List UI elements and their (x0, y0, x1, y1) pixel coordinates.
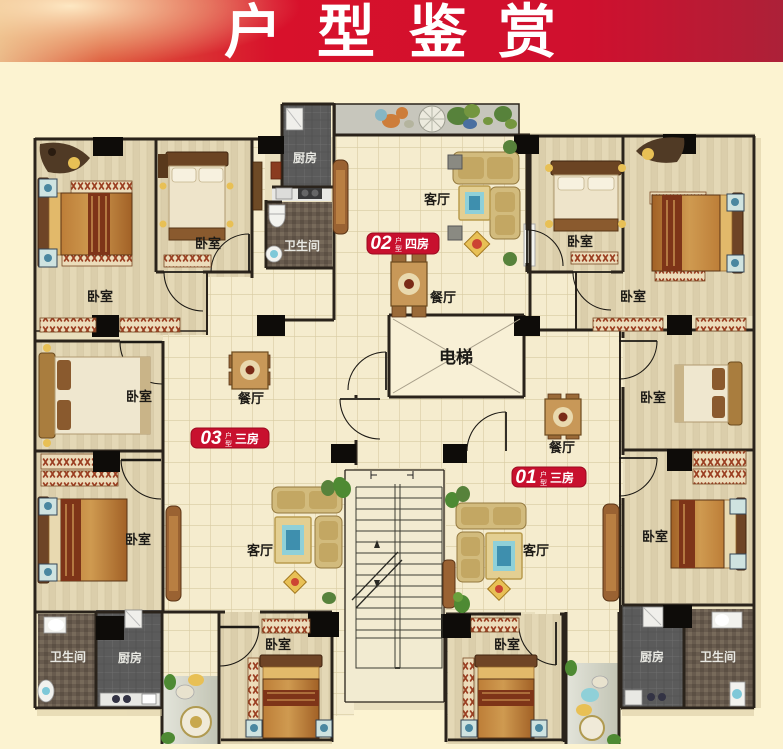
svg-text:厨房: 厨房 (640, 649, 664, 664)
svg-text:餐厅: 餐厅 (429, 290, 456, 305)
svg-text:卫生间: 卫生间 (50, 649, 86, 664)
svg-text:卧室: 卧室 (567, 234, 593, 249)
svg-text:型: 型 (225, 439, 232, 448)
svg-text:卧室: 卧室 (640, 390, 666, 405)
svg-text:鉴: 鉴 (409, 0, 468, 65)
svg-text:户: 户 (395, 236, 402, 245)
svg-text:卧室: 卧室 (87, 289, 113, 304)
svg-text:三房: 三房 (550, 470, 574, 485)
svg-text:户: 户 (225, 431, 232, 440)
svg-text:型: 型 (317, 0, 375, 65)
svg-text:四房: 四房 (405, 236, 429, 251)
svg-text:赏: 赏 (498, 0, 556, 65)
svg-text:厨房: 厨房 (118, 650, 142, 665)
svg-text:卧室: 卧室 (195, 236, 221, 251)
svg-text:型: 型 (395, 244, 402, 253)
svg-text:户: 户 (224, 0, 282, 65)
svg-text:厨房: 厨房 (293, 150, 317, 165)
svg-text:客厅: 客厅 (247, 543, 273, 558)
svg-text:02: 02 (370, 233, 392, 254)
svg-text:户: 户 (540, 470, 547, 479)
svg-text:01: 01 (515, 467, 536, 488)
svg-text:客厅: 客厅 (523, 543, 549, 558)
svg-text:餐厅: 餐厅 (548, 440, 575, 455)
svg-text:卧室: 卧室 (494, 637, 520, 652)
svg-text:餐厅: 餐厅 (237, 391, 264, 406)
svg-text:客厅: 客厅 (424, 192, 450, 207)
svg-text:卧室: 卧室 (265, 637, 291, 652)
svg-text:卧室: 卧室 (620, 289, 646, 304)
svg-text:卧室: 卧室 (642, 529, 668, 544)
svg-text:卧室: 卧室 (126, 389, 152, 404)
svg-text:三房: 三房 (235, 431, 259, 446)
svg-text:电梯: 电梯 (439, 347, 473, 367)
svg-text:型: 型 (540, 478, 547, 487)
svg-text:卫生间: 卫生间 (700, 649, 736, 664)
svg-text:03: 03 (200, 428, 222, 449)
svg-text:卫生间: 卫生间 (284, 238, 320, 253)
svg-text:卧室: 卧室 (125, 532, 151, 547)
